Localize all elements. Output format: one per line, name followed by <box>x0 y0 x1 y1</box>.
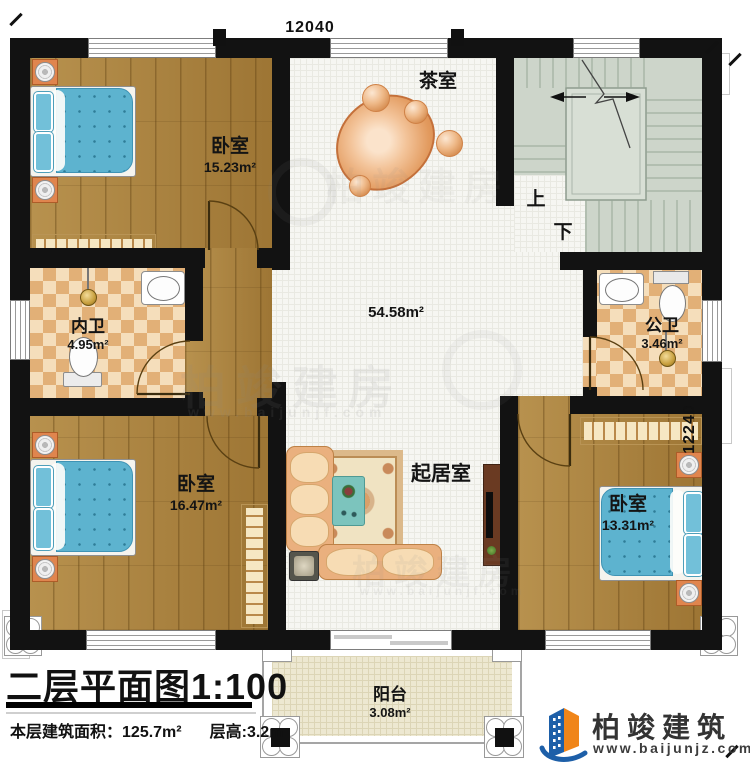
wall-bathinner-right-a <box>185 268 203 341</box>
side-table <box>289 551 319 581</box>
room-label-hall-area: 54.58m² <box>346 304 446 322</box>
stairs-up-text: 上 <box>522 189 550 212</box>
stairs-down-label: 下 <box>549 222 577 245</box>
wall-stair-left <box>496 58 514 206</box>
plan-info-line: 本层建筑面积：125.7m²层高:3.2m <box>10 718 283 742</box>
area-label: 本层建筑面积： <box>10 724 122 741</box>
sofa-cushion <box>326 548 378 576</box>
area-value: 125.7m² <box>122 724 182 741</box>
room-area: 54.58m² <box>346 304 446 322</box>
stairs-down-text: 下 <box>549 222 577 245</box>
toilet-tank <box>653 271 689 284</box>
plan-scale: 1:100 <box>191 666 288 707</box>
nightstand <box>32 556 58 582</box>
wall-living-bedroombr <box>500 396 518 630</box>
sofa-cushion <box>290 516 329 547</box>
nightstand <box>676 580 702 606</box>
room-name: 茶室 <box>395 71 481 94</box>
dimension-slash <box>9 13 22 26</box>
window <box>573 38 640 58</box>
tea-stone <box>436 130 463 157</box>
dimension-tick <box>451 29 464 46</box>
company-logo-url: www.baijunjz.com <box>593 740 750 756</box>
floor-height: 层高:3.2m <box>210 724 284 741</box>
nightstand <box>32 59 58 85</box>
plan-title-text: 二层平面图 <box>6 666 191 707</box>
room-label-tea-room: 茶室 <box>395 71 481 94</box>
stairs-up-label: 上 <box>522 189 550 212</box>
shower-cord <box>87 268 89 291</box>
tea-stone <box>404 100 428 124</box>
wall-bedroomtl-bottom-a <box>10 248 205 268</box>
room-label-living-room: 起居室 <box>391 462 491 486</box>
room-label-bedroom-bl: 卧室 16.47m² <box>146 474 246 514</box>
room-label-bath-inner: 内卫 4.95m² <box>38 317 138 353</box>
wall-stair-bottom <box>560 252 702 270</box>
company-logo-icon <box>537 704 591 764</box>
blanket <box>56 88 133 173</box>
pillow <box>684 534 703 576</box>
wall-bedroomtl-bottom-b <box>257 248 290 268</box>
pillow <box>34 508 53 550</box>
room-area: 15.23m² <box>180 159 280 176</box>
room-area: 13.31m² <box>578 517 678 534</box>
pillow <box>684 492 703 534</box>
room-name: 卧室 <box>146 474 246 497</box>
window <box>330 38 448 58</box>
nightstand <box>32 432 58 458</box>
pillow <box>34 466 53 508</box>
window <box>86 630 216 650</box>
tea-stone <box>362 84 390 112</box>
shower-head <box>80 289 97 306</box>
floor-plan-page: 卧室 15.23m² 茶室 54.58m² 内卫 4.95m² 公卫 3.46m… <box>0 0 750 773</box>
floor-drain <box>659 350 676 367</box>
room-area: 3.46m² <box>612 336 712 352</box>
room-name: 卧室 <box>180 136 280 159</box>
pillow <box>34 132 53 172</box>
room-name: 阳台 <box>340 685 440 705</box>
window <box>10 300 30 360</box>
dimension-right: 12240 <box>681 384 699 474</box>
room-area: 4.95m² <box>38 337 138 353</box>
room-area: 3.08m² <box>340 705 440 721</box>
sink-basin <box>605 278 639 302</box>
room-area: 16.47m² <box>146 497 246 514</box>
room-label-bath-public: 公卫 3.46m² <box>612 316 712 352</box>
window <box>88 38 216 58</box>
balcony-column-right <box>484 716 524 758</box>
balcony-post-top-right <box>492 648 522 662</box>
sofa-cushion <box>290 452 329 483</box>
bath-public-doorway <box>583 337 597 390</box>
dimension-tick <box>213 29 226 46</box>
room-name: 卧室 <box>578 494 678 517</box>
wall-bedroombl-right <box>268 398 286 630</box>
nightstand <box>32 177 58 203</box>
dimension-slash <box>728 53 741 66</box>
pillow <box>34 92 53 132</box>
room-label-bedroom-br: 卧室 13.31m² <box>578 494 678 534</box>
coffee-table <box>332 476 365 526</box>
wall-bedroombl-top-a <box>10 398 205 416</box>
dimension-top: 12040 <box>255 19 365 37</box>
room-name: 公卫 <box>612 316 712 336</box>
wall-bathpublic-left-b <box>583 387 597 396</box>
wall-bathpublic-left-a <box>583 270 597 337</box>
sofa-cushion <box>290 484 329 515</box>
sink-basin <box>147 276 180 301</box>
wardrobe-bottom-left <box>241 504 268 628</box>
room-name: 起居室 <box>391 462 491 486</box>
blanket <box>56 461 133 552</box>
room-name: 内卫 <box>38 317 138 337</box>
room-label-bedroom-tl: 卧室 15.23m² <box>180 136 280 176</box>
title-underline-light <box>6 712 256 714</box>
title-underline <box>6 702 252 708</box>
room-label-balcony: 阳台 3.08m² <box>340 685 440 721</box>
tea-stone <box>349 175 371 197</box>
balcony-sliding-door <box>330 630 452 650</box>
window <box>545 630 651 650</box>
sofa-cushion <box>382 548 434 576</box>
tv-screen <box>486 492 493 538</box>
plant <box>487 546 496 555</box>
